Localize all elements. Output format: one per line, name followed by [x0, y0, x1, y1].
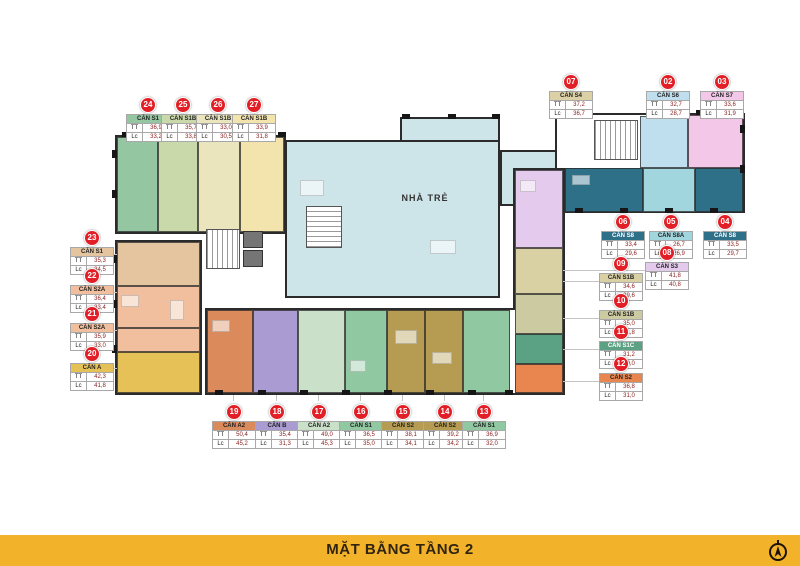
lc-label: Lc — [382, 440, 398, 449]
unit-label-06: 06 CĂN S8 TT33,4 Lc29,6 — [601, 211, 645, 259]
wall-column-tick — [468, 390, 476, 395]
lc-value: 36,7 — [566, 110, 593, 119]
unit-label-19: 19 CĂN A2 TT50,4 Lc45,2 — [212, 401, 256, 449]
tt-label: TT — [600, 383, 616, 392]
wall-column-tick — [342, 390, 350, 395]
unit-badge: 05 — [663, 214, 679, 230]
unit-badge: 14 — [437, 404, 453, 420]
wall-column-tick — [278, 132, 286, 137]
banner-title: MẶT BẰNG TẦNG 2 — [0, 541, 800, 558]
wall-column-tick — [740, 165, 745, 173]
unit-badge: 17 — [311, 404, 327, 420]
wall-column-tick — [384, 390, 392, 395]
lc-label: Lc — [463, 440, 479, 449]
tt-label: TT — [424, 431, 440, 440]
tt-label: TT — [704, 241, 720, 250]
lc-label: Lc — [127, 133, 143, 142]
wall-column-tick — [402, 114, 410, 119]
lc-label: Lc — [256, 440, 272, 449]
unit-badge: 03 — [714, 74, 730, 90]
lc-value: 32,0 — [479, 440, 506, 449]
unit-badge: 13 — [476, 404, 492, 420]
lc-label: Lc — [197, 133, 213, 142]
unit-badge: 09 — [613, 256, 629, 272]
lc-value: 45,2 — [229, 440, 256, 449]
unit-code: CĂN S2 — [600, 374, 643, 383]
lc-label: Lc — [646, 281, 662, 290]
unit-table: CĂN S1B TT33,9 Lc31,8 — [232, 114, 276, 142]
wall-column-tick — [258, 390, 266, 395]
unit-badge: 06 — [615, 214, 631, 230]
furniture-block — [432, 352, 452, 364]
unit-badge: 19 — [226, 404, 242, 420]
unit-label-13: 13 CĂN S1 TT36,9 Lc32,0 — [462, 401, 506, 449]
unit-label-07: 07 CĂN S4 TT37,2 Lc36,7 — [549, 71, 593, 119]
lc-value: 31,0 — [616, 392, 643, 401]
lc-label: Lc — [701, 110, 717, 119]
unit-code: CĂN A2 — [298, 422, 341, 431]
unit-table: CĂN S6 TT32,7 Lc28,7 — [646, 91, 690, 119]
unit-area-23 — [117, 242, 200, 286]
lc-value: 34,1 — [398, 440, 425, 449]
unit-table: CĂN A2 TT50,4 Lc45,2 — [212, 421, 256, 449]
unit-code: CĂN S7 — [701, 92, 744, 101]
wall-column-tick — [112, 150, 117, 158]
tt-label: TT — [382, 431, 398, 440]
unit-code: CĂN S3 — [646, 263, 689, 272]
unit-label-03: 03 CĂN S7 TT33,6 Lc31,9 — [700, 71, 744, 119]
elevator-block — [243, 231, 263, 248]
unit-badge: 10 — [613, 293, 629, 309]
unit-label-14: 14 CĂN S2 TT39,2 Lc34,2 — [423, 401, 467, 449]
tt-value: 41,8 — [662, 272, 689, 281]
unit-badge: 12 — [613, 356, 629, 372]
unit-code: CĂN A — [71, 364, 114, 373]
unit-badge: 16 — [353, 404, 369, 420]
furniture-block — [170, 300, 184, 320]
lc-value: 29,7 — [720, 250, 747, 259]
footer-banner: MẶT BẰNG TẦNG 2 — [0, 535, 800, 566]
unit-table: CĂN S8 TT33,5 Lc29,7 — [703, 231, 747, 259]
lc-value: 45,3 — [314, 440, 341, 449]
tt-value: 33,6 — [717, 101, 744, 110]
tt-label: TT — [213, 431, 229, 440]
unit-code: CĂN S1 — [71, 248, 114, 257]
tt-value: 33,4 — [618, 241, 645, 250]
tt-label: TT — [647, 101, 663, 110]
tt-label: TT — [256, 431, 272, 440]
tt-label: TT — [463, 431, 479, 440]
unit-badge: 23 — [84, 230, 100, 246]
tt-value: 49,0 — [314, 431, 341, 440]
lc-value: 31,9 — [717, 110, 744, 119]
lc-label: Lc — [424, 440, 440, 449]
tt-label: TT — [646, 272, 662, 281]
unit-label-04: 04 CĂN S8 TT33,5 Lc29,7 — [703, 211, 747, 259]
tt-value: 36,9 — [479, 431, 506, 440]
unit-label-16: 16 CĂN S1 TT36,5 Lc35,0 — [339, 401, 383, 449]
lc-label: Lc — [704, 250, 720, 259]
lc-label: Lc — [340, 440, 356, 449]
unit-label-27: 27 CĂN S1B TT33,9 Lc31,8 — [232, 94, 276, 142]
unit-area-22 — [117, 286, 200, 328]
tt-value: 35,9 — [87, 333, 114, 342]
unit-table: CĂN B TT35,4 Lc31,3 — [255, 421, 299, 449]
tt-label: TT — [71, 373, 87, 382]
tt-label: TT — [127, 124, 143, 133]
unit-table: CĂN S4 TT37,2 Lc36,7 — [549, 91, 593, 119]
unit-badge: 26 — [210, 97, 226, 113]
floor-plan-page: NHÀ TRẺ 07 CĂN S4 TT37,2 Lc36,7 02 CĂN S… — [0, 0, 800, 566]
wall-column-tick — [505, 390, 513, 395]
tt-value: 33,5 — [720, 241, 747, 250]
tt-value: 35,4 — [272, 431, 299, 440]
unit-area-12 — [515, 364, 563, 393]
leader-line — [563, 281, 600, 282]
tt-label: TT — [162, 124, 178, 133]
unit-label-15: 15 CĂN S2 TT38,1 Lc34,1 — [381, 401, 425, 449]
unit-table: CĂN S2 TT36,8 Lc31,0 — [599, 373, 643, 401]
furniture-block — [300, 180, 324, 196]
stairs-top-right — [594, 120, 638, 160]
furniture-block — [520, 180, 536, 192]
wall-column-tick — [575, 208, 583, 213]
unit-label-08: 08 CĂN S3 TT41,8 Lc40,8 — [645, 242, 689, 290]
unit-code: CĂN S8 — [704, 232, 747, 241]
tt-value: 33,9 — [249, 124, 276, 133]
unit-badge: 07 — [563, 74, 579, 90]
elevator-block — [243, 250, 263, 267]
unit-area-02 — [640, 116, 688, 168]
lc-value: 31,3 — [272, 440, 299, 449]
leader-line — [563, 349, 600, 350]
unit-badge: 11 — [613, 324, 629, 340]
tt-value: 36,5 — [356, 431, 383, 440]
unit-area-16 — [345, 310, 387, 393]
unit-area-17 — [298, 310, 345, 393]
wall-column-tick — [426, 390, 434, 395]
nursery-label: NHÀ TRẺ — [345, 193, 505, 203]
unit-code: CĂN S2A — [71, 324, 114, 333]
lc-label: Lc — [647, 110, 663, 119]
unit-code: CĂN S1 — [340, 422, 383, 431]
lc-value: 31,8 — [249, 133, 276, 142]
unit-area-26 — [198, 137, 240, 232]
leader-line — [563, 318, 600, 319]
lc-label: Lc — [550, 110, 566, 119]
unit-code: CĂN S2 — [424, 422, 467, 431]
unit-code: CĂN S2A — [71, 286, 114, 295]
unit-badge: 25 — [175, 97, 191, 113]
unit-area-24 — [117, 137, 158, 232]
unit-code: CĂN B — [256, 422, 299, 431]
unit-code: CĂN S1C — [600, 342, 643, 351]
lc-label: Lc — [71, 382, 87, 391]
lc-label: Lc — [233, 133, 249, 142]
tt-label: TT — [71, 333, 87, 342]
unit-table: CĂN S1 TT36,9 Lc32,0 — [462, 421, 506, 449]
furniture-block — [121, 295, 139, 307]
furniture-block — [212, 320, 230, 332]
wall-column-tick — [740, 125, 745, 133]
stairs-nursery — [306, 206, 342, 248]
unit-code: CĂN A2 — [213, 422, 256, 431]
tt-value: 42,3 — [87, 373, 114, 382]
unit-area-10 — [515, 294, 563, 334]
unit-table: CĂN S7 TT33,6 Lc31,9 — [700, 91, 744, 119]
unit-badge: 15 — [395, 404, 411, 420]
unit-code: CĂN S4 — [550, 92, 593, 101]
unit-code: CĂN S8 — [602, 232, 645, 241]
tt-value: 50,4 — [229, 431, 256, 440]
unit-area-18 — [253, 310, 298, 393]
unit-table: CĂN S1 TT36,5 Lc35,0 — [339, 421, 383, 449]
unit-code: CĂN S2 — [382, 422, 425, 431]
unit-area-05 — [643, 168, 695, 212]
north-compass-icon — [765, 537, 791, 563]
lc-label: Lc — [162, 133, 178, 142]
unit-badge: 18 — [269, 404, 285, 420]
furniture-block — [350, 360, 366, 372]
unit-label-02: 02 CĂN S6 TT32,7 Lc28,7 — [646, 71, 690, 119]
tt-label: TT — [602, 241, 618, 250]
unit-area-15 — [387, 310, 425, 393]
wall-column-tick — [448, 114, 456, 119]
lc-label: Lc — [600, 392, 616, 401]
unit-code: CĂN S6 — [647, 92, 690, 101]
lc-label: Lc — [213, 440, 229, 449]
unit-area-13 — [463, 310, 510, 393]
unit-badge: 04 — [717, 214, 733, 230]
tt-value: 38,1 — [398, 431, 425, 440]
unit-table: CĂN S2 TT39,2 Lc34,2 — [423, 421, 467, 449]
tt-label: TT — [298, 431, 314, 440]
unit-area-20 — [117, 352, 200, 393]
leader-line — [563, 381, 600, 382]
unit-badge: 02 — [660, 74, 676, 90]
unit-badge: 20 — [84, 346, 100, 362]
furniture-block — [430, 240, 456, 254]
tt-label: TT — [550, 101, 566, 110]
tt-label: TT — [701, 101, 717, 110]
lc-value: 41,8 — [87, 382, 114, 391]
unit-code: CĂN S1B — [233, 115, 276, 124]
tt-value: 32,7 — [663, 101, 690, 110]
unit-label-20: 20 CĂN A TT42,3 Lc41,8 — [70, 343, 114, 391]
furniture-block — [572, 175, 590, 185]
unit-badge: 24 — [140, 97, 156, 113]
unit-code: CĂN S1 — [463, 422, 506, 431]
wall-column-tick — [215, 390, 223, 395]
unit-table: CĂN S3 TT41,8 Lc40,8 — [645, 262, 689, 290]
unit-area-11 — [515, 334, 563, 364]
tt-value: 36,8 — [616, 383, 643, 392]
unit-label-18: 18 CĂN B TT35,4 Lc31,3 — [255, 401, 299, 449]
unit-area-03 — [688, 115, 743, 168]
lc-value: 35,0 — [356, 440, 383, 449]
lc-label: Lc — [298, 440, 314, 449]
unit-area-04 — [695, 168, 743, 212]
unit-badge: 21 — [84, 306, 100, 322]
unit-area-27 — [240, 137, 284, 232]
tt-label: TT — [340, 431, 356, 440]
furniture-block — [395, 330, 417, 344]
unit-area-09 — [515, 248, 563, 294]
unit-badge: 27 — [246, 97, 262, 113]
unit-badge: 22 — [84, 268, 100, 284]
tt-label: TT — [233, 124, 249, 133]
lc-value: 40,8 — [662, 281, 689, 290]
stairs-core-center — [206, 229, 240, 269]
unit-code: CĂN S8A — [650, 232, 693, 241]
lc-value: 28,7 — [663, 110, 690, 119]
unit-code: CĂN S1B — [600, 274, 643, 283]
unit-code: CĂN S1B — [600, 311, 643, 320]
tt-label: TT — [197, 124, 213, 133]
unit-area-21 — [117, 328, 200, 352]
wall-column-tick — [492, 114, 500, 119]
unit-badge: 08 — [659, 245, 675, 261]
unit-label-17: 17 CĂN A2 TT49,0 Lc45,3 — [297, 401, 341, 449]
wall-column-tick — [112, 190, 117, 198]
unit-table: CĂN A TT42,3 Lc41,8 — [70, 363, 114, 391]
wall-column-tick — [300, 390, 308, 395]
unit-label-12: 12 CĂN S2 TT36,8 Lc31,0 — [599, 353, 643, 401]
unit-table: CĂN S2 TT38,1 Lc34,1 — [381, 421, 425, 449]
unit-table: CĂN A2 TT49,0 Lc45,3 — [297, 421, 341, 449]
unit-area-25 — [158, 137, 198, 232]
tt-value: 37,2 — [566, 101, 593, 110]
